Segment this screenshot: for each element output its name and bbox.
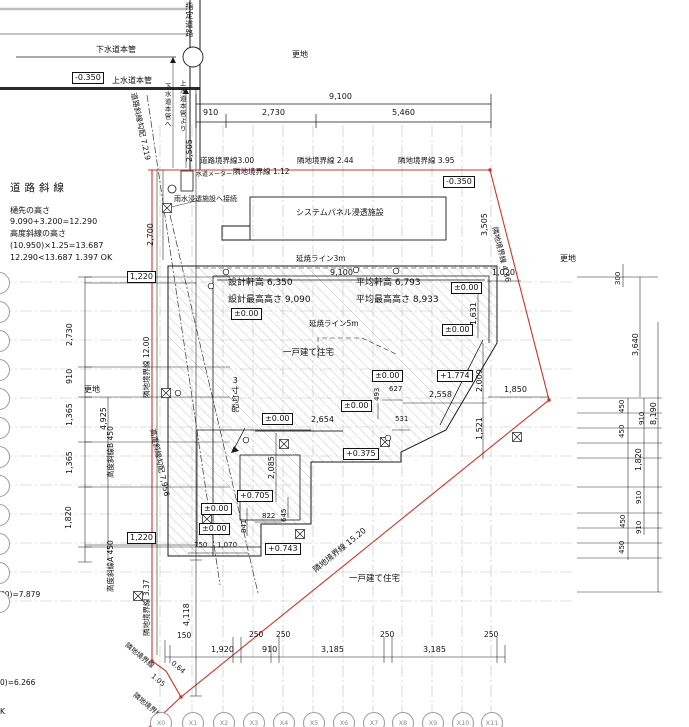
- sewer-main-label: 下水道本管: [96, 46, 136, 55]
- note-line: 9.090+3.200=12.290: [10, 218, 97, 227]
- grid-bubble-x9: X9: [422, 712, 444, 727]
- dim-label: 250: [249, 631, 263, 639]
- note-line: 樋先の高さ: [10, 207, 50, 216]
- dim-label: 3,185: [423, 646, 446, 655]
- area-label-vacant-lot: 更地: [560, 255, 576, 264]
- grid-bubble-y: [0, 301, 10, 323]
- grid-bubble-y: [0, 446, 10, 468]
- boundary-label: 隣地境界線 3.95: [398, 157, 455, 165]
- utility-label: 上水道本管より: [178, 80, 185, 133]
- dim-label: 450: [619, 400, 627, 413]
- grid-bubble-y: [0, 504, 10, 526]
- grid-bubble-x1: X1: [182, 712, 204, 727]
- note-line: 12.290<13.687 1.397 OK: [10, 254, 112, 263]
- dim-label: 4,118: [183, 603, 192, 626]
- note-line: (10.950)×1.25=13.687: [10, 242, 103, 251]
- roof-pitch-label: 3寸勾配: [230, 376, 239, 413]
- grid-bubble-x8: X8: [392, 712, 414, 727]
- grid-bubble-y: [0, 330, 10, 352]
- boundary-label: 隣地境界線 1.12: [233, 168, 290, 176]
- dim-label: 2,700: [147, 223, 156, 246]
- dim-label: 627: [389, 386, 402, 394]
- boundary-label: 隣地境界線 12.00: [143, 337, 151, 398]
- grid-bubble-y: [0, 562, 10, 584]
- grid-bubble-y: [0, 475, 10, 497]
- dim-label: 910: [636, 491, 644, 504]
- elevation-label: +1.774: [437, 370, 473, 382]
- drawing-labels: 下水道本管-0.350上水道本管指定道路更地9,1009102,7305,460…: [0, 0, 689, 727]
- note-line: 高度斜線の高さ: [10, 230, 66, 239]
- grid-bubble-x4: X4: [273, 712, 295, 727]
- dim-label: 1,365: [66, 403, 75, 426]
- dim-label: 910: [203, 109, 218, 118]
- dim-label: 1,820: [635, 448, 644, 471]
- elevation-label: +0.375: [343, 448, 379, 460]
- grid-bubble-x11: X11: [481, 712, 503, 727]
- dim-label: 1,850: [504, 386, 527, 395]
- dim-label: 2,654: [311, 416, 334, 425]
- dim-label: 450: [620, 515, 628, 528]
- elevation-label: +0.743: [265, 543, 301, 555]
- dim-label: 1,920: [211, 646, 234, 655]
- road-slope-heading: 道路斜線: [10, 183, 68, 195]
- elevation-label: ±0.00: [262, 413, 293, 425]
- boundary-label: 隣地境界線 3.37: [143, 579, 151, 636]
- area-label-vacant-lot: 更地: [292, 51, 308, 60]
- dim-box: 1,220: [127, 271, 156, 283]
- dim-label: 910: [636, 521, 644, 534]
- design-eave-height: 設計軒高 6,350: [228, 279, 293, 289]
- dim-label: 2,730: [262, 109, 285, 118]
- dim-label: 531: [395, 416, 408, 424]
- cut-formula-text: 0)=6.266: [0, 679, 35, 687]
- fire-spread-line-3m-label: 延焼ライン3m: [296, 255, 346, 263]
- dim-label: 450: [619, 541, 627, 554]
- dim-label: 2,085: [268, 456, 277, 479]
- dim-label: 1,521: [476, 417, 485, 440]
- rainwater-label: 雨水浸透施設へ接続: [174, 196, 237, 204]
- dim-label: 2,505: [186, 139, 195, 162]
- dim-label: 3,185: [321, 646, 344, 655]
- dim-label: 2,730: [66, 323, 75, 346]
- boundary-label: 隣地境界線: [123, 642, 155, 670]
- dim-label: 3,640: [632, 333, 641, 356]
- boundary-length-label: 1.05: [149, 673, 166, 689]
- grid-bubble-y: [0, 417, 10, 439]
- elevation-label: -0.350: [443, 176, 475, 188]
- grid-bubble-y: [0, 533, 10, 555]
- grid-bubble-y: [0, 388, 10, 410]
- grid-bubble-x7: X7: [363, 712, 385, 727]
- grid-bubble-x0: X0: [150, 712, 172, 727]
- water-meter-label: 水道メーター: [196, 172, 232, 179]
- dim-box: 1,220: [127, 532, 156, 544]
- dim-label: 450: [619, 425, 627, 438]
- dim-label: 822: [262, 513, 275, 521]
- dim-label: 3,505: [481, 213, 490, 236]
- grid-bubble-x3: X3: [243, 712, 265, 727]
- grid-bubble-x5: X5: [303, 712, 325, 727]
- cut-formula-text: K: [0, 708, 5, 716]
- average-eave-height: 平均軒高 6,793: [356, 279, 421, 289]
- dim-label: 250: [276, 631, 290, 639]
- elevation-label: ±0.00: [451, 282, 482, 294]
- elevation-label: ±0.00: [231, 308, 262, 320]
- dim-label: 493: [374, 388, 382, 401]
- grid-bubble-x10: X10: [452, 712, 474, 727]
- road-boundary-label: 道路境界線3.00: [200, 157, 254, 165]
- detached-house-label: 一戸建て住宅: [283, 349, 334, 358]
- dim-label: 645: [281, 509, 289, 522]
- elevation-label: ±0.00: [341, 400, 372, 412]
- dim-label: 1,631: [470, 302, 479, 325]
- dim-label: 910: [639, 412, 647, 425]
- dim-label: 8,190: [650, 402, 659, 425]
- dim-label: 1,820: [65, 506, 74, 529]
- dim-label: 841: [241, 520, 249, 533]
- design-max-height: 設計最高高さ 9,090: [228, 296, 311, 306]
- elevation-label: ±0.00: [442, 324, 473, 336]
- water-main-label: 上水道本管: [112, 77, 152, 86]
- boundary-length-label: 0.64: [169, 660, 186, 676]
- infiltration-panel-label: システムパネル浸透施設: [296, 209, 384, 218]
- average-max-height: 平均最高高さ 8,933: [356, 296, 439, 306]
- height-slope-b-label: 高度斜線B 450: [107, 426, 115, 478]
- dim-label: 910: [262, 646, 277, 655]
- dim-label: 250: [484, 631, 498, 639]
- road-slope-label: 道路斜線勾配 7.219: [129, 92, 151, 161]
- grid-bubble-y: [0, 272, 10, 294]
- dim-label: 150: [177, 632, 191, 640]
- grid-bubble-x2: X2: [213, 712, 235, 727]
- designated-road-label: 指定道路: [184, 2, 193, 38]
- elevation-label: -0.350: [72, 72, 104, 84]
- dim-label: 9,100: [329, 93, 352, 102]
- grid-bubble-y: [0, 359, 10, 381]
- boundary-label: 隣地境界線 2.44: [297, 157, 354, 165]
- height-slope-label: 高度斜線勾配 7,956: [148, 428, 170, 497]
- site-plan-drawing: 下水道本管-0.350上水道本管指定道路更地9,1009102,7305,460…: [0, 0, 689, 727]
- fire-spread-line-5m-label: 延焼ライン5m: [309, 320, 359, 328]
- boundary-label: 隣地境界線 15.20: [312, 527, 368, 575]
- height-slope-a-label: 高度斜線A 450: [107, 540, 115, 592]
- dim-label: 2,558: [429, 391, 452, 400]
- elevation-label: ±0.00: [372, 370, 403, 382]
- utility-label: 下水道本管へ: [163, 83, 170, 128]
- dim-label: 1,070: [217, 542, 237, 550]
- dim-label: 1,365: [66, 451, 75, 474]
- neighbor-house-label: 一戸建て住宅: [349, 575, 400, 584]
- dim-label: 5,460: [392, 109, 415, 118]
- elevation-label: ±0.00: [201, 503, 232, 515]
- dim-label: 910: [66, 369, 75, 384]
- dim-label: 750: [194, 542, 207, 550]
- area-label-vacant-lot: 更地: [84, 386, 100, 395]
- elevation-label: +0.705: [237, 490, 273, 502]
- dim-label: 300: [615, 272, 623, 285]
- dim-label: 250: [380, 631, 394, 639]
- dim-label: 1,020: [492, 269, 515, 278]
- grid-bubble-x6: X6: [333, 712, 355, 727]
- dim-label: 2,009: [476, 369, 485, 392]
- dim-label: 9,100: [330, 269, 353, 278]
- elevation-label: ±0.00: [199, 523, 230, 535]
